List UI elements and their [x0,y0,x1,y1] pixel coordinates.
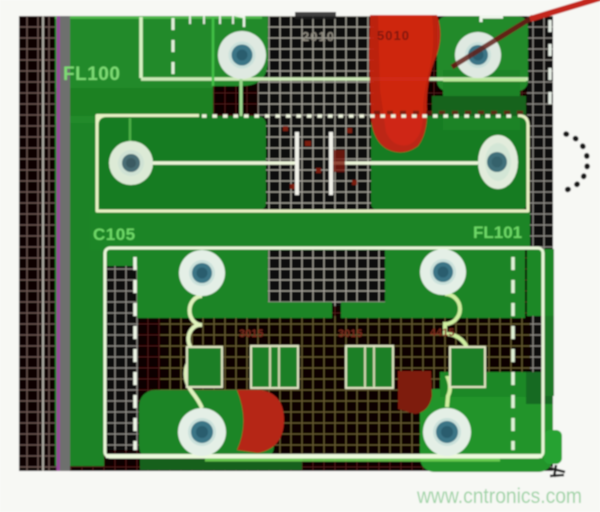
svg-text:4415: 4415 [430,327,454,339]
svg-text:3015: 3015 [239,328,263,340]
svg-text:www.cntronics.com: www.cntronics.com [416,484,582,508]
svg-text:2010: 2010 [302,29,335,44]
svg-text:3015: 3015 [338,328,362,340]
svg-text:FL100: FL100 [63,64,120,85]
svg-text:5010: 5010 [377,28,410,43]
svg-text:FL101: FL101 [473,223,522,242]
svg-text:C105: C105 [93,225,136,244]
